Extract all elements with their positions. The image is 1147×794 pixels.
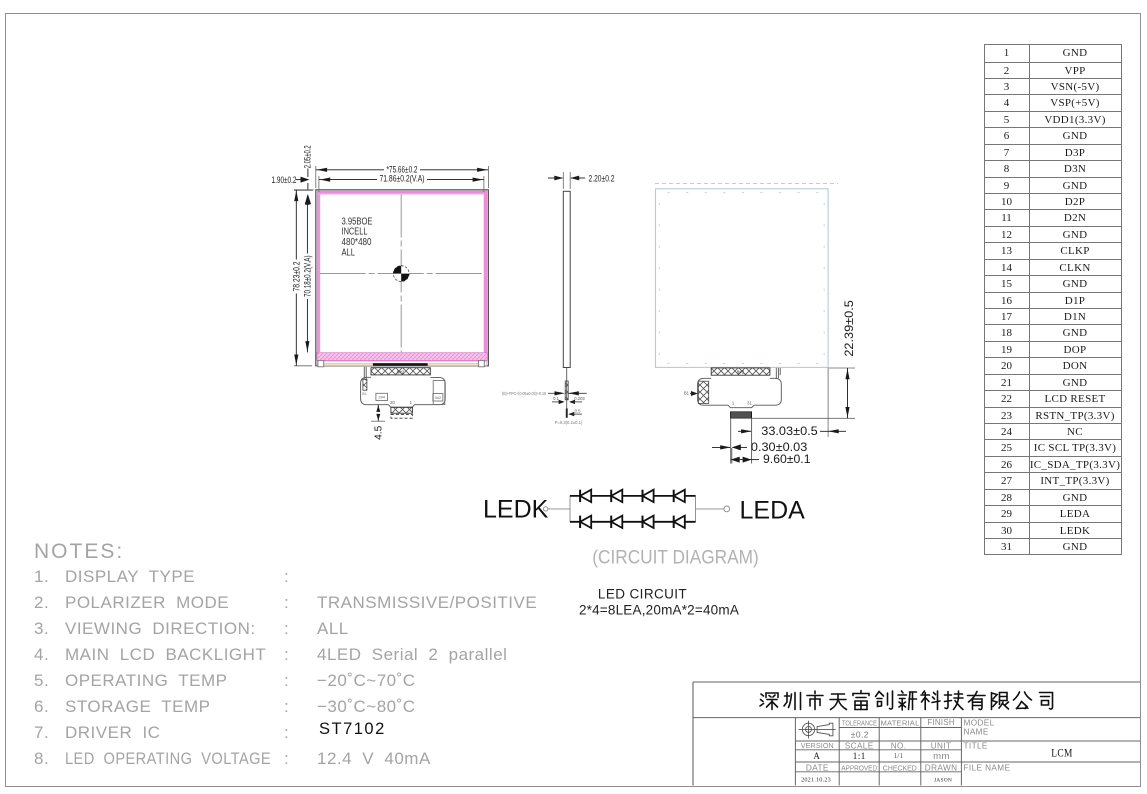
svg-text:MATERIAL: MATERIAL (880, 718, 919, 727)
svg-text:UNIT: UNIT (931, 742, 952, 751)
svg-text:FILE NAME: FILE NAME (964, 764, 1011, 773)
svg-text:VERSION: VERSION (801, 741, 834, 750)
svg-text:MODEL: MODEL (964, 719, 995, 728)
svg-text:±0.2: ±0.2 (851, 730, 869, 740)
svg-text:LCM: LCM (1051, 746, 1073, 760)
svg-text:JASON: JASON (934, 778, 952, 784)
svg-text:FINISH: FINISH (927, 718, 954, 727)
svg-text:A: A (813, 751, 820, 761)
svg-text:2021.10.23: 2021.10.23 (801, 777, 831, 784)
svg-text:APPROVED: APPROVED (841, 764, 877, 773)
svg-text:SCALE: SCALE (845, 742, 874, 751)
svg-text:CHECKED: CHECKED (883, 764, 917, 773)
svg-text:TOLERANCE: TOLERANCE (842, 718, 877, 727)
svg-text:NO.: NO. (891, 742, 907, 751)
svg-text:DATE: DATE (806, 764, 829, 773)
svg-text:1/1: 1/1 (894, 752, 904, 760)
svg-text:1:1: 1:1 (853, 752, 866, 762)
svg-text:NAME: NAME (964, 728, 989, 737)
svg-text:DRAWN: DRAWN (925, 764, 958, 773)
svg-text:mm: mm (933, 751, 950, 762)
svg-text:TITLE: TITLE (964, 742, 988, 751)
